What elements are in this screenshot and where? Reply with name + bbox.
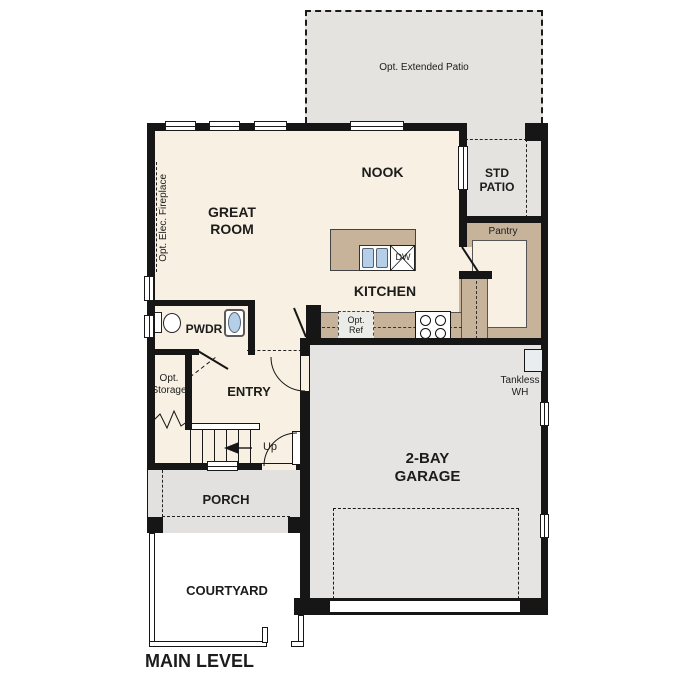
toilet-tank	[154, 312, 162, 333]
extended-patio-area: Opt. Extended Patio	[305, 10, 543, 123]
porch-post-right	[288, 517, 305, 533]
window-icon	[350, 121, 404, 131]
extended-patio-label: Opt. Extended Patio	[379, 62, 469, 74]
entry-garage-door-gap	[301, 356, 309, 391]
garage-door-opening	[330, 600, 520, 613]
wall-pwdr-top	[147, 300, 255, 306]
wall-pantry-right	[541, 223, 548, 345]
courtyard-wall-bottom	[149, 641, 267, 647]
wall-pwdr-right	[248, 300, 255, 355]
wall-kitchen-entry-stub	[306, 305, 321, 343]
sink-basin-left	[362, 248, 374, 268]
wall-counter-stub	[459, 271, 492, 279]
burner-icon	[420, 315, 431, 326]
fireplace-label: Opt. Elec. Fireplace	[158, 167, 170, 269]
cooktop	[415, 311, 451, 341]
porch-dash-h	[162, 516, 290, 517]
entry-ceiling-dash	[247, 350, 307, 351]
std-patio-dash-h	[465, 139, 527, 140]
window-icon	[207, 461, 238, 471]
stair-landing	[188, 423, 260, 430]
courtyard-label: COURTYARD	[182, 583, 272, 598]
window-icon	[254, 121, 287, 131]
pwdr-sink-basin	[228, 312, 241, 333]
great-room-label: GREAT ROOM	[182, 204, 282, 237]
up-label: Up	[259, 441, 281, 454]
dw-label: DW	[391, 252, 415, 263]
opt-storage-label: Opt. Storage	[145, 373, 193, 397]
opt-ref-label: Opt. Ref	[347, 316, 364, 336]
front-door-leaf	[292, 431, 301, 465]
kitchen-counter-right	[461, 278, 488, 342]
window-icon	[165, 121, 196, 131]
courtyard-wall-right-foot	[291, 641, 304, 647]
porch-dash-v	[162, 470, 163, 517]
counter-dash-v	[476, 281, 477, 339]
front-door-gap	[262, 464, 296, 470]
window-icon	[540, 402, 549, 426]
courtyard-wall-tick	[262, 627, 268, 643]
tankless-label: Tankless WH	[496, 375, 544, 399]
toilet-bowl	[163, 313, 181, 333]
courtyard-wall-right	[298, 615, 304, 643]
burner-icon	[435, 315, 446, 326]
window-icon	[209, 121, 240, 131]
entry-label: ENTRY	[221, 384, 277, 399]
fireplace-dash	[156, 162, 157, 272]
porch-label: PORCH	[196, 492, 256, 507]
courtyard-wall-left	[149, 533, 155, 647]
window-icon	[540, 514, 549, 538]
floor-plan: Opt. Extended Patio Opt. Ref	[0, 0, 687, 687]
pwdr-label: PWDR	[182, 322, 226, 336]
wall-patio-bottom	[459, 216, 548, 223]
window-icon	[144, 315, 154, 338]
wall-patio-corner-block	[525, 123, 545, 141]
main-level-title: MAIN LEVEL	[145, 651, 285, 672]
wall-pantry-stub	[459, 223, 467, 247]
pantry-label: Pantry	[478, 226, 528, 238]
std-patio-label: STD PATIO	[467, 166, 527, 194]
stair-treads	[190, 430, 259, 464]
garage-label: 2-BAY GARAGE	[385, 450, 470, 485]
porch-post-left	[147, 517, 163, 533]
kitchen-label: KITCHEN	[345, 283, 425, 300]
wall-kitchen-garage	[300, 338, 548, 345]
sink-basin-right	[376, 248, 388, 268]
window-icon	[144, 276, 154, 301]
tankless-wh-unit	[524, 349, 543, 372]
opt-ref: Opt. Ref	[338, 311, 374, 341]
nook-label: NOOK	[340, 164, 425, 181]
